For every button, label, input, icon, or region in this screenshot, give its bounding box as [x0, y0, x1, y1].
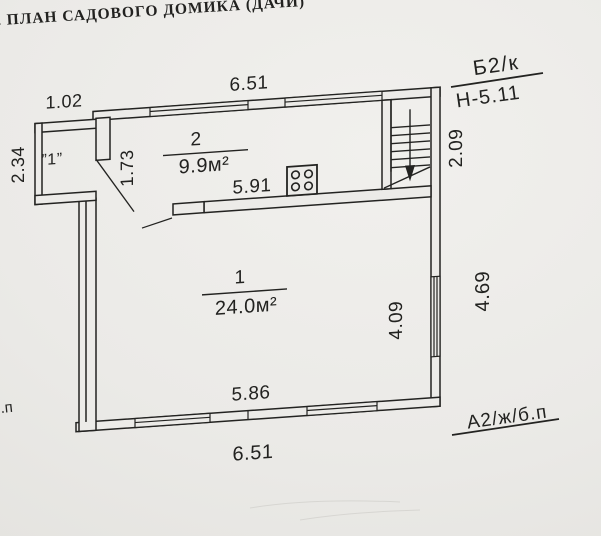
dim-stair-depth: 2.09: [446, 128, 467, 168]
room1-area: 24.0м²: [215, 294, 277, 320]
dim-bottom-width: 6.51: [233, 441, 274, 466]
scanned-floor-plan-page: { "page": { "title": "В. ПЛАН САДОВОГО Д…: [0, 0, 601, 536]
dim-top-width: 6.51: [230, 72, 269, 96]
stairs-down-arrow-icon: [405, 109, 415, 182]
dim-room-depth: 4.09: [386, 300, 407, 340]
room2-area: 9.9м²: [179, 153, 230, 179]
porch-label: ”1”: [41, 151, 62, 169]
porch-wall-top: [35, 119, 97, 132]
plan-body: 2 9.9м² 1 24.0м² ”1” 6.51 1.02 2.34 1.73…: [8, 56, 494, 481]
dim-room-width: 5.86: [232, 382, 271, 406]
room1-number: 1: [234, 267, 245, 289]
stove-icon: [287, 165, 317, 196]
bottom-right-mark: А2/ж/б.п: [452, 402, 559, 435]
porch-partition: [96, 117, 110, 160]
building-mark-bottom: А2/ж/б.п: [466, 402, 549, 434]
height-mark: Н-5.11: [455, 82, 522, 113]
wall-right: [431, 87, 440, 407]
wall-interior-end-block: [173, 202, 204, 215]
window-top-left: [150, 101, 248, 117]
page-title: В. ПЛАН САДОВОГО ДОМИКА (ДАЧИ): [0, 0, 306, 30]
wall-left: [79, 198, 96, 431]
edge-fragment: .п: [0, 399, 14, 417]
walls: [35, 87, 440, 434]
windows: [135, 87, 440, 427]
window-bottom-right: [307, 402, 377, 416]
dim-porch-width: 1.02: [45, 90, 82, 113]
door-leaf-interior: [142, 218, 172, 228]
dim-porch-depth: 2.34: [8, 146, 28, 184]
room2-number: 2: [190, 129, 201, 151]
building-mark-top: Б2/к: [471, 51, 520, 80]
dim-right-side: 4.69: [472, 270, 494, 312]
window-top-right: [285, 91, 382, 107]
dim-hall-width: 1.73: [117, 149, 137, 187]
dim-kitchen-width: 5.91: [233, 175, 272, 199]
window-right: [431, 276, 440, 357]
pencil-smudges: [250, 501, 420, 520]
stairwell-wall: [382, 100, 391, 190]
top-right-mark: Б2/к Н-5.11: [451, 51, 543, 113]
floor-plan-drawing: В. ПЛАН САДОВОГО ДОМИКА (ДАЧИ) Б2/к Н-5.…: [0, 0, 601, 536]
window-bottom-left: [135, 413, 210, 427]
